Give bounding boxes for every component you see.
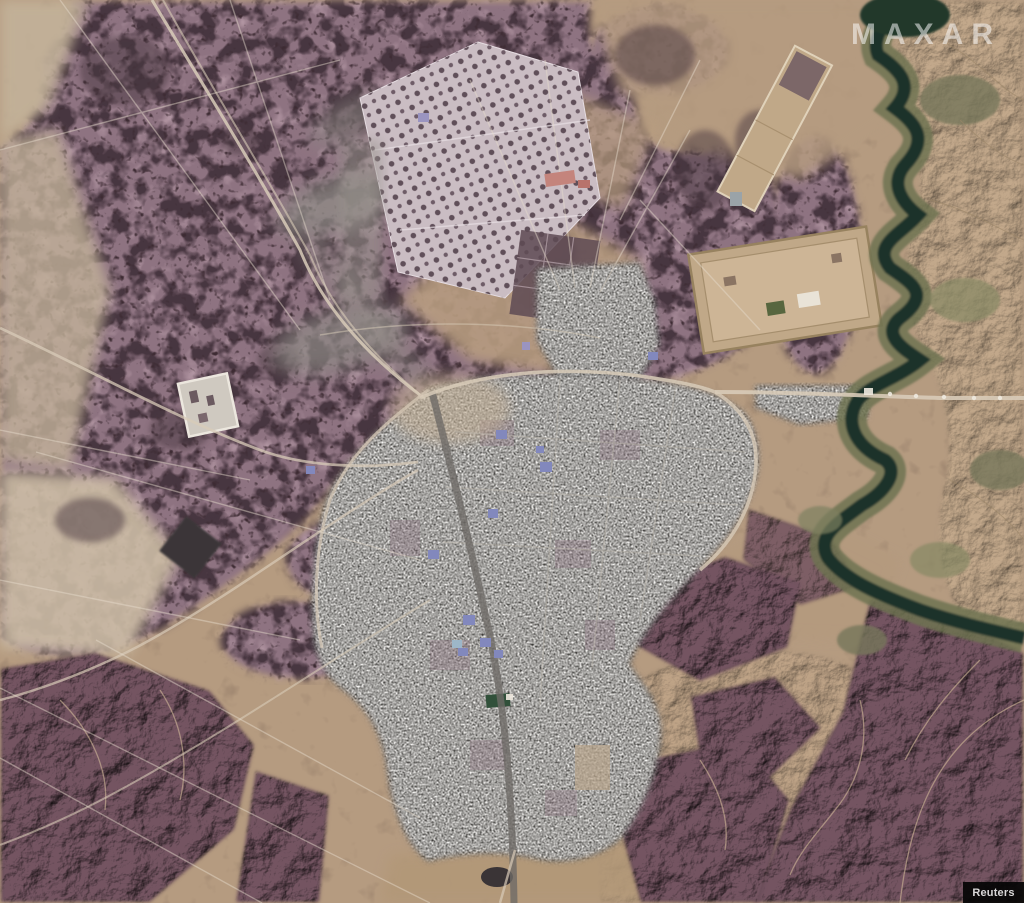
satellite-canvas [0, 0, 1024, 903]
small-building [730, 192, 742, 206]
compound-green-plot [766, 300, 786, 316]
city-north-district [536, 262, 660, 382]
satellite-image: MAXAR Reuters [0, 0, 1024, 903]
orchard-west-gray-strip [340, 140, 382, 300]
reuters-credit-label: Reuters [972, 887, 1014, 899]
maxar-logo-watermark: MAXAR [851, 17, 1021, 53]
reuters-credit-badge: Reuters [963, 882, 1024, 903]
city-sand-block [575, 745, 610, 790]
